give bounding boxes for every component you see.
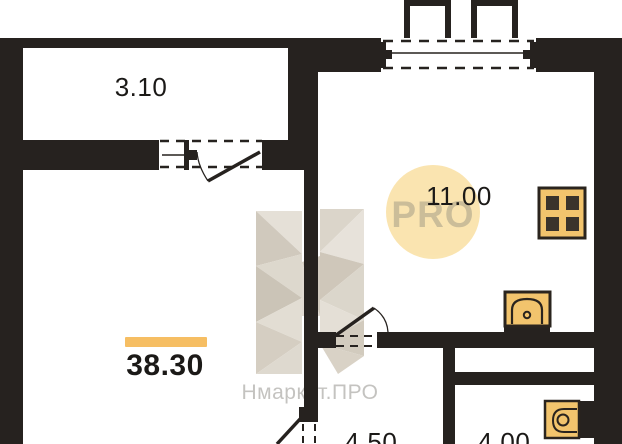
fixtures [0,0,622,444]
kitchen-sink-icon [504,292,550,336]
balcony-area-label: 3.10 [115,74,168,100]
floor-plan-image: Нмаркет.ПРО PRO [0,0,622,444]
bathtub-icon [545,401,594,438]
bathroom-area-label: 4.00 [478,429,531,444]
hallway-area-label: 4.50 [345,429,398,444]
stove-burners-icon [539,188,585,238]
total-area-label: 38.30 [126,351,204,381]
total-area-highlight-bar [125,337,207,347]
kitchen-area-label: 11.00 [426,183,492,209]
